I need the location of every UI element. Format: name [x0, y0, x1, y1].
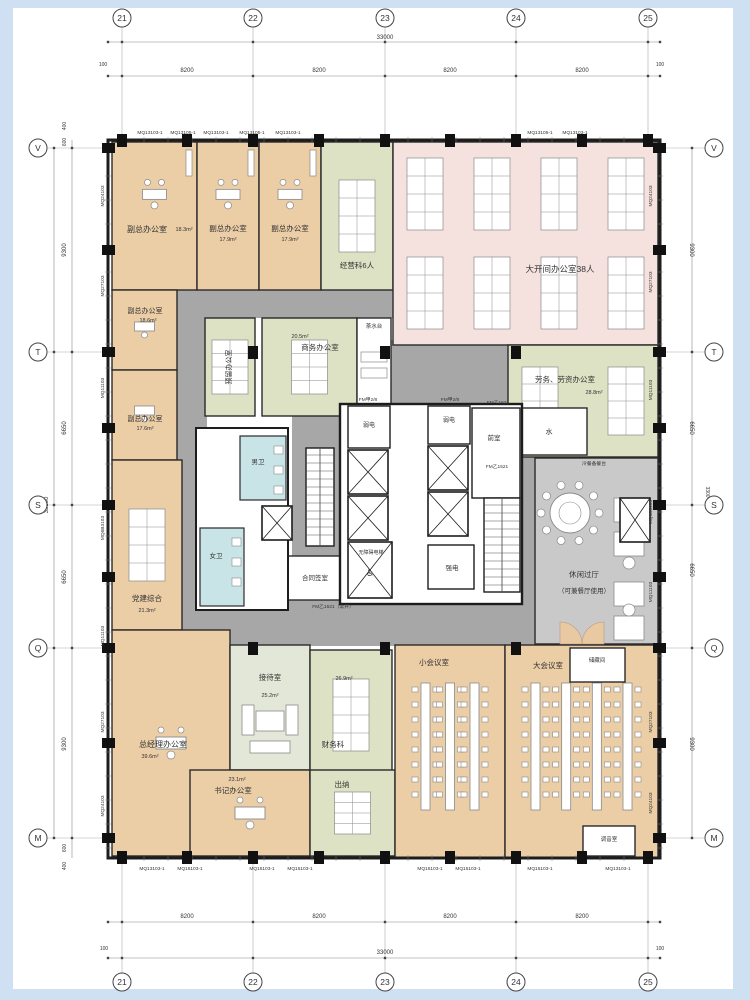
window-tag: MQ13103-1: [139, 866, 165, 872]
dim-tick: [252, 921, 254, 923]
chair: [225, 202, 232, 209]
dimension-text: 8200: [443, 68, 457, 74]
window-tag: MQ24103: [100, 795, 106, 816]
column: [577, 851, 587, 864]
dim-tick: [384, 41, 386, 43]
chair: [635, 717, 641, 722]
window-tag: MQ24103: [100, 185, 106, 206]
core-label: 弱电: [443, 416, 455, 424]
room-label-laowu: 28.8m²: [585, 390, 602, 396]
dim-tick: [515, 921, 517, 923]
column: [380, 851, 390, 864]
dimension-text: 33000: [377, 950, 394, 956]
chair: [145, 179, 151, 185]
chair: [635, 792, 641, 797]
room-label-dangjian: 党建综合: [132, 593, 162, 603]
chair: [635, 732, 641, 737]
chair: [635, 702, 641, 707]
room-chucang: [570, 648, 625, 682]
column: [653, 833, 666, 843]
chair: [461, 717, 467, 722]
chair: [583, 777, 589, 782]
chair: [604, 777, 610, 782]
room-label-shangwu: 商务办公室: [301, 342, 339, 352]
grid-bubble-label: M: [710, 833, 717, 843]
dimension-text: 9300: [62, 737, 68, 751]
grid-bubble-label: Q: [711, 643, 718, 653]
chair: [595, 509, 603, 517]
room-label-dangjian: 21.3m²: [138, 608, 155, 614]
grid-bubble-label: V: [35, 143, 41, 153]
room-label-fuzong-d: 18.6m²: [139, 318, 156, 324]
dimension-text: 8200: [575, 914, 589, 920]
grid-bubble-label: 22: [248, 977, 258, 987]
dim-tick: [252, 75, 254, 77]
dim-tick: [647, 41, 649, 43]
sofa: [242, 705, 254, 735]
meeting-table: [592, 683, 601, 810]
meeting-table: [562, 683, 571, 810]
room-label-fuzong-c: 17.9m²: [281, 237, 298, 243]
chair: [437, 762, 443, 767]
dim-tick: [71, 837, 73, 839]
column: [511, 346, 521, 359]
chair: [604, 702, 610, 707]
sofa: [614, 616, 644, 640]
column: [248, 346, 258, 359]
column: [117, 851, 127, 864]
window-tag: MQ27103: [100, 275, 106, 296]
dim-tick: [691, 147, 693, 149]
room-label-jiedai: 接待室: [259, 672, 282, 682]
chair: [635, 777, 641, 782]
dimension-text: 600: [62, 138, 68, 147]
dim-tick: [691, 351, 693, 353]
desk: [135, 406, 155, 415]
chair: [583, 762, 589, 767]
dim-tick: [107, 75, 109, 77]
wc-stall: [274, 466, 283, 474]
dimension-text: 8200: [443, 914, 457, 920]
room-label-fuzong-a: 副总办公室: [127, 224, 167, 234]
column: [380, 642, 390, 655]
dim-tick: [515, 957, 517, 959]
dimension-text: 600: [62, 844, 68, 853]
room-label-fuzong-b: 副总办公室: [209, 223, 247, 233]
dimension-text: 100: [99, 62, 108, 68]
dim-tick: [71, 147, 73, 149]
column: [102, 500, 115, 510]
chair: [604, 717, 610, 722]
chair: [482, 717, 488, 722]
chair: [246, 821, 254, 829]
dim-tick: [384, 921, 386, 923]
dimension-text: 100: [100, 946, 109, 952]
chair: [543, 762, 549, 767]
chair: [482, 762, 488, 767]
room-label-chucang: 储藏间: [589, 656, 606, 664]
window-tag: MQ13103-1: [275, 130, 301, 136]
sofa: [250, 741, 290, 753]
grid-bubble-label: 23: [380, 13, 390, 23]
column: [102, 245, 115, 255]
chair: [522, 687, 528, 692]
window-tag: MQ27103: [100, 711, 106, 732]
chair: [575, 481, 583, 489]
dim-tick: [515, 41, 517, 43]
window-tag: MQ15103-1: [287, 866, 313, 872]
chair: [437, 747, 443, 752]
room-label-shuji: 23.1m²: [228, 777, 245, 783]
chair: [482, 777, 488, 782]
chair: [557, 481, 565, 489]
chair: [482, 687, 488, 692]
window-tag: MQ11103: [100, 625, 106, 646]
column: [511, 851, 521, 864]
chair: [142, 332, 148, 338]
window-tag: MQ27103: [648, 711, 654, 732]
window-tag: MQ13103-1: [562, 130, 588, 136]
chair: [437, 777, 443, 782]
chair: [482, 732, 488, 737]
chair: [167, 751, 175, 759]
dim-tick: [659, 41, 661, 43]
chair: [437, 732, 443, 737]
grid-bubble-label: T: [35, 347, 40, 357]
room-label-shuji: 书记办公室: [214, 785, 252, 795]
chair: [543, 687, 549, 692]
dim-tick: [647, 75, 649, 77]
column: [314, 851, 324, 864]
chair: [553, 762, 559, 767]
chair: [522, 747, 528, 752]
grid-bubble-label: 23: [380, 977, 390, 987]
chair: [635, 747, 641, 752]
chair: [583, 732, 589, 737]
window-tag: MQ6B3103: [100, 516, 106, 541]
chair: [543, 747, 549, 752]
column: [653, 245, 666, 255]
window-tag: MQ13103-1: [605, 866, 631, 872]
meeting-table: [470, 683, 479, 810]
chair: [461, 762, 467, 767]
dimension-text: 100: [656, 62, 665, 68]
column: [102, 572, 115, 582]
grid-bubble-label: 25: [643, 977, 653, 987]
room-label-nanwei: 男卫: [252, 458, 266, 466]
chair: [574, 717, 580, 722]
window-tag: MQ15103-1: [455, 866, 481, 872]
dim-tick: [53, 351, 55, 353]
room-label-caiwu: 财务科: [322, 739, 345, 749]
dim-tick: [53, 147, 55, 149]
meeting-table: [421, 683, 430, 810]
grid-bubble-label: S: [35, 500, 41, 510]
wc-stall: [232, 538, 241, 546]
column: [248, 642, 258, 655]
grid-bubble-label: M: [34, 833, 41, 843]
dim-tick: [53, 647, 55, 649]
meeting-table: [446, 683, 455, 810]
window-tag: MQ13105-1: [170, 130, 196, 136]
chair: [543, 526, 551, 534]
room-label-xiaohuiyishi: 小会议室: [419, 657, 449, 667]
chair: [461, 747, 467, 752]
dimension-text: 6650: [688, 421, 694, 435]
dim-tick: [515, 75, 517, 77]
chair: [537, 509, 545, 517]
dim-tick: [252, 957, 254, 959]
room-label-fuzong-e: 副总办公室: [128, 414, 163, 423]
counter: [361, 368, 387, 378]
wc-stall: [274, 486, 283, 494]
dim-tick: [107, 41, 109, 43]
chair: [574, 732, 580, 737]
room-label-fuzong-e: 17.6m²: [136, 426, 153, 432]
chair: [437, 687, 443, 692]
chair: [412, 777, 418, 782]
grid-bubble-label: 21: [117, 13, 127, 23]
column: [653, 143, 666, 153]
dim-tick: [659, 921, 661, 923]
window-tag: MQ15103-1: [177, 866, 203, 872]
chair: [522, 717, 528, 722]
dim-tick: [71, 351, 73, 353]
column: [380, 134, 390, 147]
chair: [583, 717, 589, 722]
grid-bubble-label: 22: [248, 13, 258, 23]
column: [117, 134, 127, 147]
grid-bubble-label: V: [711, 143, 717, 153]
chair: [635, 687, 641, 692]
dim-tick: [659, 957, 661, 959]
chair: [614, 687, 620, 692]
core-label: FM乙1521: [487, 399, 510, 406]
desk: [216, 189, 240, 199]
dimension-text: 9300: [62, 243, 68, 257]
core-label: FM甲2/8: [359, 397, 378, 403]
window-tag: MQ13105-1: [527, 130, 553, 136]
sofa: [286, 705, 298, 735]
core-room: [472, 408, 520, 498]
chair: [522, 732, 528, 737]
wc-stall: [274, 446, 283, 454]
dim-tick: [71, 647, 73, 649]
table: [256, 711, 284, 731]
column: [653, 423, 666, 433]
chair: [574, 687, 580, 692]
column: [102, 423, 115, 433]
dimension-text: 400: [62, 862, 68, 871]
dim-tick: [71, 504, 73, 506]
column: [445, 134, 455, 147]
corridor: [433, 345, 508, 406]
room-label-yuliu: 预留办公室: [224, 350, 233, 385]
column: [248, 851, 258, 864]
core-label: FM甲2/8: [441, 397, 460, 403]
window-tag: MQ6B3103: [648, 500, 654, 525]
grid-bubble-label: 24: [511, 977, 521, 987]
chair: [614, 702, 620, 707]
chair: [614, 777, 620, 782]
chair: [614, 762, 620, 767]
column: [102, 833, 115, 843]
column: [653, 572, 666, 582]
cabinet: [248, 150, 254, 176]
chair: [604, 687, 610, 692]
column: [445, 851, 455, 864]
floor-plan: 3300010082008200820082001008200820082008…: [0, 0, 750, 1000]
chair: [614, 732, 620, 737]
chair: [574, 777, 580, 782]
chair: [543, 732, 549, 737]
dim-tick: [121, 41, 123, 43]
window-tag: MQ15103-1: [417, 866, 443, 872]
window-tag: MQ24103: [648, 792, 654, 813]
grid-bubble-label: 25: [643, 13, 653, 23]
chair: [159, 179, 165, 185]
room-label-zongjingli: 总经理办公室: [139, 739, 187, 749]
core-label: 弱电: [363, 421, 375, 429]
chair: [437, 702, 443, 707]
dim-tick: [121, 957, 123, 959]
chair: [461, 702, 467, 707]
core-label: 冷餐备餐台: [582, 460, 606, 467]
column: [511, 642, 521, 655]
room-label-shui: 水: [546, 427, 553, 436]
cabinet: [310, 150, 316, 176]
meeting-table: [531, 683, 540, 810]
room-label-fuzong-c: 副总办公室: [271, 223, 309, 233]
chair: [543, 702, 549, 707]
core-label: FM乙1521: [486, 463, 509, 470]
dimension-text: 400: [62, 122, 68, 131]
grid-bubble-label: Q: [35, 643, 42, 653]
dim-tick: [384, 957, 386, 959]
room-label-zongjingli: 39.6m²: [141, 754, 158, 760]
column: [653, 643, 666, 653]
window-tag: MQ13105-1: [239, 130, 265, 136]
chair: [574, 702, 580, 707]
dimension-text: 8200: [180, 914, 194, 920]
chair: [635, 762, 641, 767]
chair: [589, 526, 597, 534]
window-tag: MQ13103-1: [203, 130, 229, 136]
room-fuzong-a: [112, 142, 197, 290]
chair: [522, 777, 528, 782]
dimension-text: 8200: [312, 68, 326, 74]
dim-tick: [121, 921, 123, 923]
chair: [280, 179, 286, 185]
dim-tick: [659, 75, 661, 77]
room-label-xiuxian: （可兼餐厅使用）: [558, 586, 610, 595]
chair: [623, 604, 635, 616]
core-label: 前室: [488, 433, 502, 442]
chair: [218, 179, 224, 185]
chair: [437, 717, 443, 722]
room-label-chashuitai: 茶水台: [366, 322, 383, 330]
room-label-dahuiyishi: 大会议室: [533, 660, 563, 670]
chair: [412, 702, 418, 707]
dim-tick: [384, 75, 386, 77]
dim-tick: [691, 647, 693, 649]
grid-bubble-label: 24: [511, 13, 521, 23]
chair: [412, 732, 418, 737]
column: [380, 346, 390, 359]
cabinet: [186, 150, 192, 176]
column: [653, 500, 666, 510]
core-room: [428, 406, 470, 444]
window-tag: MQ13103-1: [137, 130, 163, 136]
chair: [482, 702, 488, 707]
room-label-laowu: 劳务、劳资办公室: [535, 374, 595, 384]
room-label-fuzong-b: 17.9m²: [219, 237, 236, 243]
dim-tick: [53, 504, 55, 506]
desk: [278, 189, 302, 199]
room-label-fuzong-d: 副总办公室: [128, 306, 163, 315]
window-tag: MQ11103: [648, 379, 654, 400]
chair: [287, 202, 294, 209]
dimension-text: 6650: [688, 563, 694, 577]
chair: [543, 792, 549, 797]
dim-tick: [107, 921, 109, 923]
window-tag: MQ15103-1: [527, 866, 553, 872]
sofa: [614, 582, 644, 606]
column: [511, 134, 521, 147]
chair: [412, 747, 418, 752]
chair: [574, 762, 580, 767]
chair: [522, 792, 528, 797]
chair: [437, 792, 443, 797]
room-label-fuzong-a: 18.3m²: [175, 227, 192, 233]
column: [314, 134, 324, 147]
column: [653, 738, 666, 748]
dimension-text: 6650: [62, 570, 68, 584]
chair: [257, 797, 263, 803]
room-label-shangwu: 20.5m²: [291, 334, 308, 340]
chair: [553, 777, 559, 782]
dimension-text: 3300: [704, 486, 710, 497]
column: [653, 347, 666, 357]
chair: [614, 717, 620, 722]
chair: [553, 792, 559, 797]
dim-tick: [121, 75, 123, 77]
chair: [553, 702, 559, 707]
chair: [482, 747, 488, 752]
wc-stall: [232, 578, 241, 586]
chair: [232, 179, 238, 185]
chair: [412, 762, 418, 767]
chair: [557, 537, 565, 545]
chair: [461, 732, 467, 737]
dim-tick: [107, 957, 109, 959]
room-label-xiuxian: 休闲过厅: [569, 569, 599, 579]
room-label-chuna: 出纳: [335, 779, 350, 789]
chair: [461, 792, 467, 797]
chair: [583, 702, 589, 707]
floor-plan-canvas: 3300010082008200820082001008200820082008…: [0, 0, 750, 1000]
chair: [583, 687, 589, 692]
chair: [574, 792, 580, 797]
chair: [412, 792, 418, 797]
window-tag: MQ24103: [648, 185, 654, 206]
room-label-jingyingke: 经营科6人: [340, 260, 375, 270]
chair: [412, 717, 418, 722]
dimension-text: 6650: [62, 421, 68, 435]
chair: [574, 747, 580, 752]
round-table: [550, 493, 590, 533]
chair: [522, 762, 528, 767]
